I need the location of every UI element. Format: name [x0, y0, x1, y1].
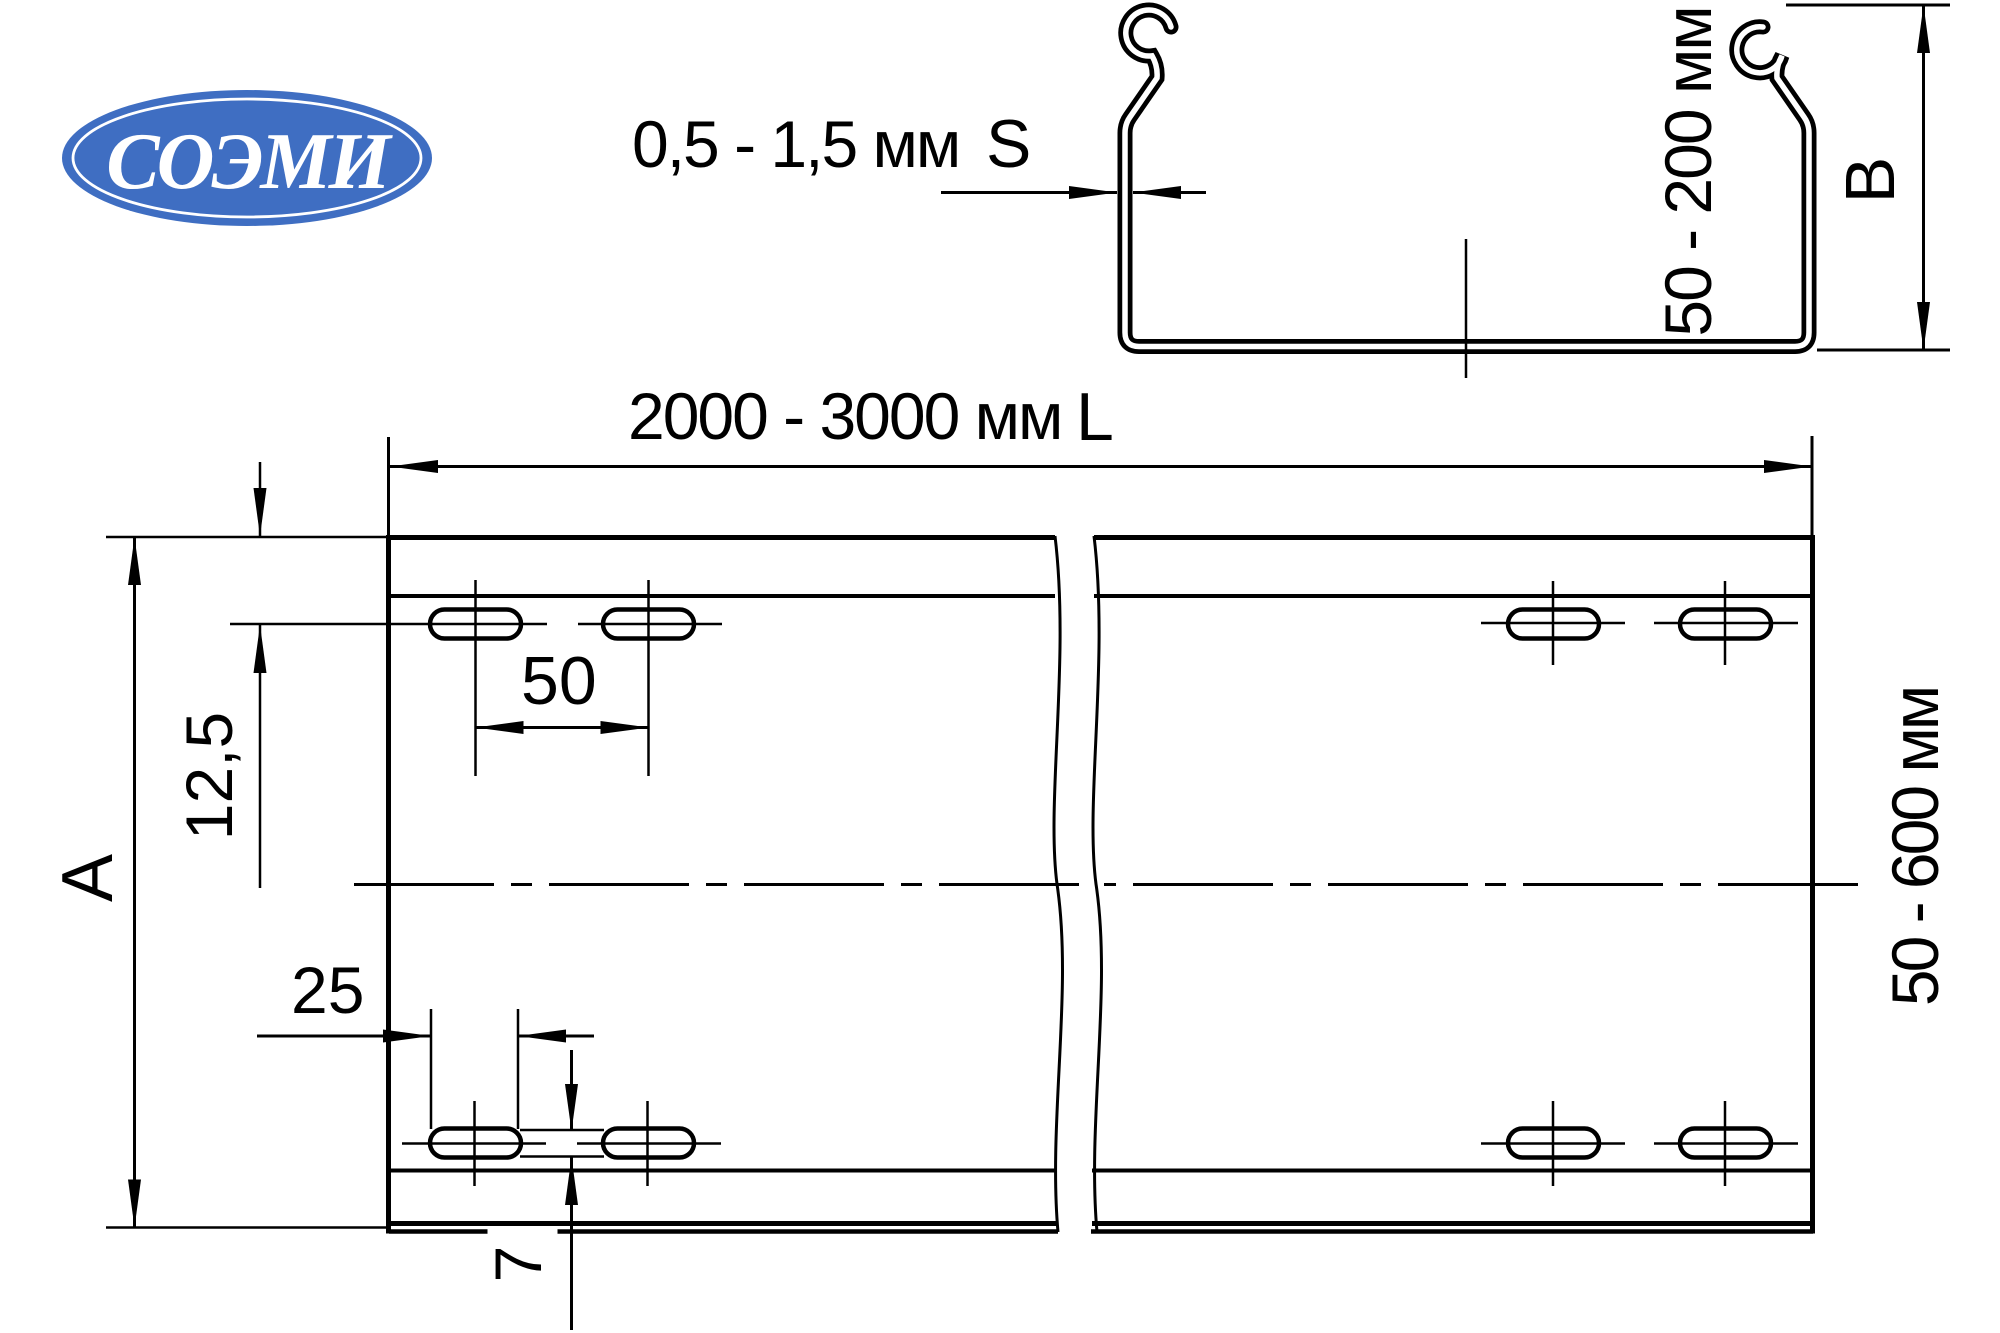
svg-text:A: A	[48, 854, 128, 902]
svg-text:СОЭМИ: СОЭМИ	[106, 118, 393, 206]
svg-text:50 - 600 мм: 50 - 600 мм	[1878, 688, 1952, 1006]
svg-text:L: L	[1076, 379, 1114, 455]
svg-text:50 - 200 мм: 50 - 200 мм	[1651, 7, 1725, 336]
svg-text:0,5 - 1,5 мм: 0,5 - 1,5 мм	[632, 107, 959, 181]
svg-text:12,5: 12,5	[172, 712, 246, 840]
svg-text:50: 50	[521, 643, 597, 719]
svg-text:2000 - 3000 мм: 2000 - 3000 мм	[628, 379, 1061, 453]
svg-text:25: 25	[291, 953, 364, 1027]
svg-text:B: B	[1831, 157, 1909, 204]
svg-text:S: S	[986, 106, 1031, 182]
svg-text:7: 7	[481, 1246, 555, 1283]
